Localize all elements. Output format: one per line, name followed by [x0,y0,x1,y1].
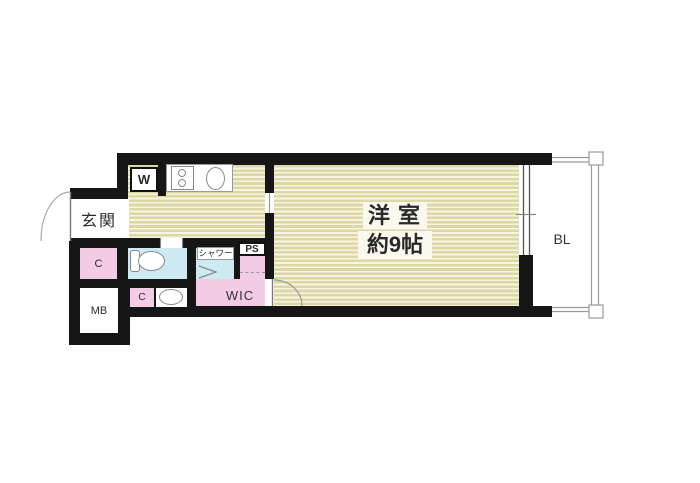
shower-door-symbol [199,266,216,278]
linework-overlay [0,0,700,483]
balcony-top-edge [552,158,590,163]
balcony-post [589,305,603,318]
floor-plan: 玄関 C MB C シャワー PS WIC W 洋室 約9帖 BL [0,0,700,483]
balcony-railing [592,162,599,307]
balcony-post [589,152,603,165]
toilet-door-jamb [161,238,183,248]
window-glass-line [524,165,530,255]
entrance-door-arc [41,192,70,241]
room-door-arc [274,280,302,306]
balcony-bottom-edge [552,308,590,312]
